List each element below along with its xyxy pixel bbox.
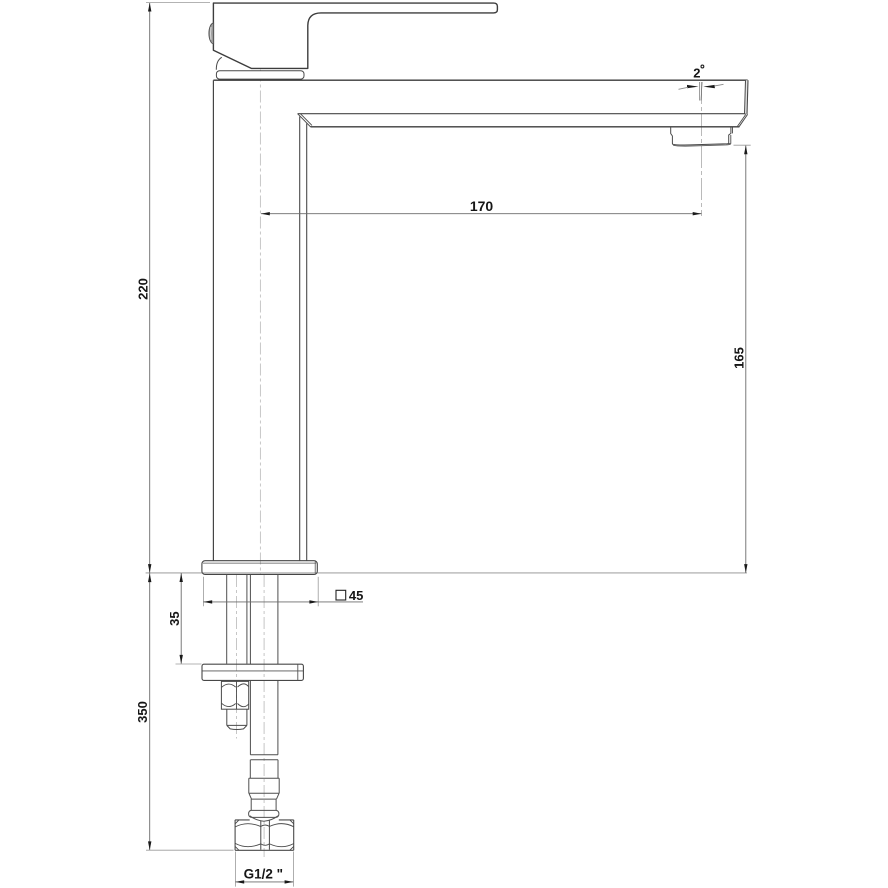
svg-text:350: 350 [135, 701, 150, 723]
svg-text:45: 45 [349, 588, 363, 603]
svg-text:G1/2 ": G1/2 " [244, 867, 283, 882]
svg-text:220: 220 [135, 278, 150, 300]
svg-text:165: 165 [731, 347, 746, 369]
svg-text:170: 170 [470, 198, 494, 214]
svg-text:35: 35 [167, 611, 182, 625]
svg-text:2: 2 [693, 66, 700, 81]
